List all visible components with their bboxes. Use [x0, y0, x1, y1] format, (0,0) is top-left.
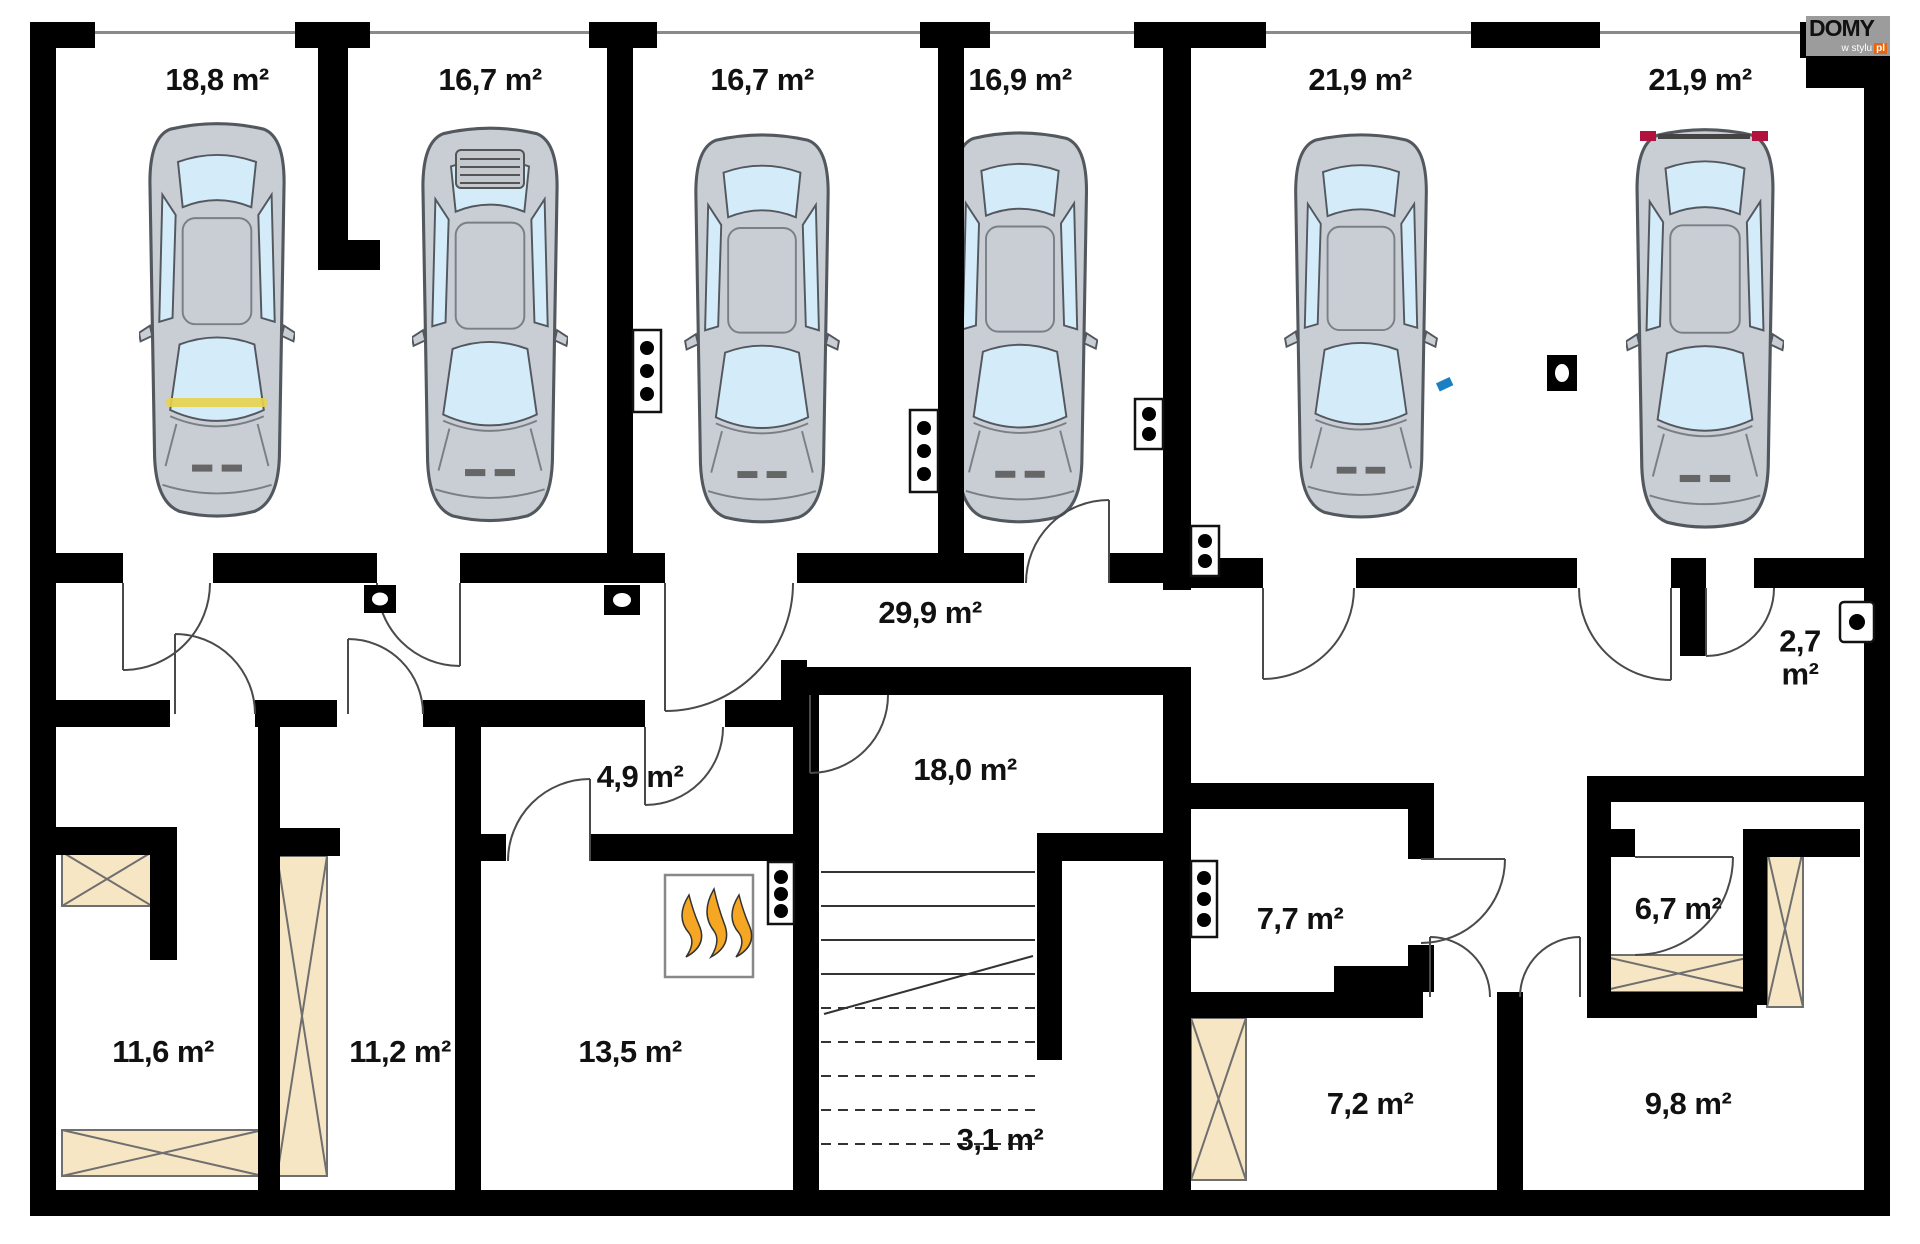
- shafts: [62, 850, 1803, 1180]
- shaft-left-tall: [277, 856, 327, 1176]
- label-room-18-0: 18,0 m²: [913, 752, 1016, 788]
- meter-box-5: [1191, 861, 1217, 937]
- label-corridor: 29,9 m²: [878, 595, 981, 631]
- door-room-7-7: [1421, 859, 1505, 943]
- label-room-13-5: 13,5 m²: [578, 1034, 681, 1070]
- door-hall-right: [1579, 588, 1671, 680]
- label-room-11-6: 11,6 m²: [112, 1034, 214, 1070]
- door-room-11-6: [175, 634, 255, 714]
- car-garage-5: [1285, 135, 1453, 517]
- label-garage-3: 16,7 m²: [710, 62, 813, 98]
- logo-under-block: [1806, 56, 1890, 88]
- shaft-right-horizontal: [1597, 955, 1760, 992]
- shaft-left-bottom: [62, 1130, 263, 1176]
- label-garage-1: 18,8 m²: [165, 62, 268, 98]
- fireplace-icon: [665, 875, 753, 977]
- car-garage-2: [412, 128, 568, 520]
- door-room-7-2: [1430, 937, 1490, 997]
- door-garage-5: [1263, 588, 1354, 679]
- shaft-left-upper: [62, 852, 152, 906]
- wall-vent: [1840, 602, 1874, 642]
- car-garage-6: [1626, 130, 1784, 527]
- staircase: [821, 872, 1035, 1144]
- car-garage-3: [685, 135, 839, 522]
- door-room-13-5: [508, 779, 590, 861]
- meter-box-2: [910, 410, 938, 492]
- wall-outer-bottom: [30, 1190, 1890, 1216]
- door-room-9-8: [1520, 937, 1580, 997]
- meter-box-6: [768, 862, 794, 924]
- meter-box-3: [1135, 399, 1163, 449]
- label-room-4-9: 4,9 m²: [597, 759, 684, 795]
- brand-logo: DOMY w stylu pl: [1806, 16, 1890, 88]
- floor-plan: 18,8 m² 16,7 m² 16,7 m² 16,9 m² 21,9 m² …: [0, 0, 1920, 1244]
- door-garage-3: [665, 583, 793, 711]
- door-stair-hall: [810, 695, 888, 773]
- logo-tagline: w stylu: [1842, 43, 1873, 54]
- label-room-7-7: 7,7 m²: [1257, 901, 1344, 937]
- wall-outer-left: [30, 22, 56, 1216]
- socket-2: [364, 585, 396, 613]
- shaft-center-bottom: [1191, 1018, 1246, 1180]
- label-garage-4: 16,9 m²: [968, 62, 1071, 98]
- meter-box-1: [633, 330, 661, 412]
- logo-title: DOMY: [1806, 16, 1890, 40]
- stair-cut-line: [824, 956, 1033, 1014]
- car-garage-1: [139, 124, 295, 516]
- door-hall-top-left: [123, 583, 210, 670]
- label-garage-5: 21,9 m²: [1308, 62, 1411, 98]
- label-vestibule: 2,7 m²: [1761, 625, 1839, 690]
- logo-box: DOMY w stylu pl: [1806, 16, 1890, 56]
- label-room-7-2: 7,2 m²: [1327, 1086, 1414, 1122]
- label-garage-2: 16,7 m²: [438, 62, 541, 98]
- label-room-3-1: 3,1 m²: [957, 1122, 1044, 1158]
- label-room-11-2: 11,2 m²: [349, 1034, 451, 1070]
- shaft-right-vertical: [1767, 850, 1803, 1007]
- car-garage-4: [943, 133, 1098, 522]
- label-room-6-7: 6,7 m²: [1635, 891, 1722, 927]
- socket-1: [604, 585, 640, 615]
- socket-3: [1547, 355, 1577, 391]
- label-garage-6: 21,9 m²: [1648, 62, 1751, 98]
- label-room-9-8: 9,8 m²: [1645, 1086, 1732, 1122]
- meter-box-4: [1191, 526, 1219, 576]
- logo-domain: pl: [1874, 43, 1887, 54]
